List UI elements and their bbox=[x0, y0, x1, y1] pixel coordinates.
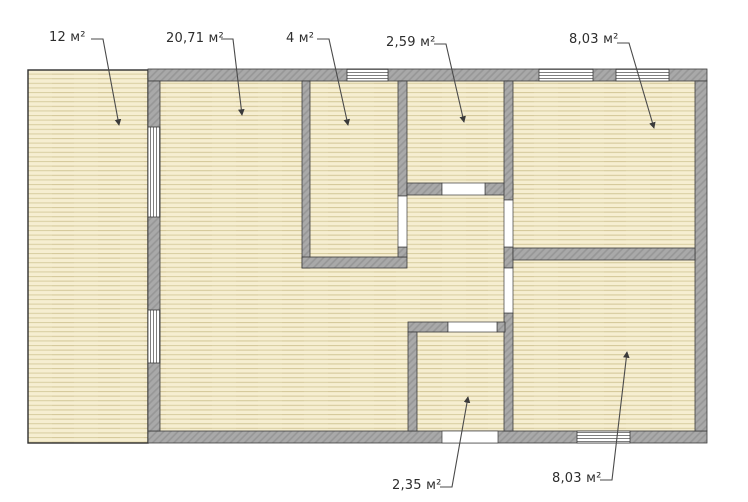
wall-inner-left-of-closet bbox=[302, 81, 310, 268]
window-left-1 bbox=[148, 127, 160, 217]
area-label-hall-top: 2,59 м² bbox=[386, 36, 436, 50]
wall-inner-closet-bottom bbox=[302, 257, 407, 268]
wall-inner-right-divider-middle bbox=[504, 247, 513, 268]
window-top-1 bbox=[347, 69, 388, 81]
wall-inner-right-divider-upper bbox=[504, 81, 513, 200]
area-label-small-bottom: 2,35 м² bbox=[392, 479, 442, 493]
area-label-large-center: 20,71 м² bbox=[166, 32, 224, 46]
floor-plan-drawing bbox=[0, 0, 748, 502]
wall-inner-closet-right-upper bbox=[398, 81, 407, 196]
wall-inner-closet-right-lower bbox=[398, 247, 407, 257]
door-room-bottom-right bbox=[504, 268, 513, 313]
area-label-left-strip: 12 м² bbox=[49, 31, 86, 45]
window-top-3 bbox=[616, 69, 669, 81]
wall-inner-between-right-rooms bbox=[513, 248, 695, 260]
area-label-small-top-mid: 4 м² bbox=[286, 32, 314, 46]
wall-outer-right bbox=[695, 81, 707, 431]
door-closet bbox=[398, 196, 407, 247]
window-bottom-1 bbox=[577, 431, 630, 443]
wall-inner-hall-bottom-left bbox=[407, 183, 442, 195]
window-top-2 bbox=[539, 69, 593, 81]
room-floor-left-strip bbox=[28, 70, 148, 443]
door-bottom-entrance bbox=[442, 431, 498, 443]
area-label-bottom-right: 8,03 м² bbox=[552, 472, 602, 486]
door-hall-top bbox=[442, 183, 485, 195]
wall-inner-bath-top-right bbox=[497, 322, 505, 332]
wall-inner-bath-left bbox=[408, 332, 417, 431]
door-bath bbox=[448, 322, 497, 332]
door-room-top-right bbox=[504, 200, 513, 247]
window-left-2 bbox=[148, 310, 160, 363]
area-label-top-right: 8,03 м² bbox=[569, 33, 619, 47]
wall-inner-bath-top-left bbox=[408, 322, 448, 332]
floor-plan: 12 м² 20,71 м² 4 м² 2,59 м² 8,03 м² 2,35… bbox=[0, 0, 748, 502]
